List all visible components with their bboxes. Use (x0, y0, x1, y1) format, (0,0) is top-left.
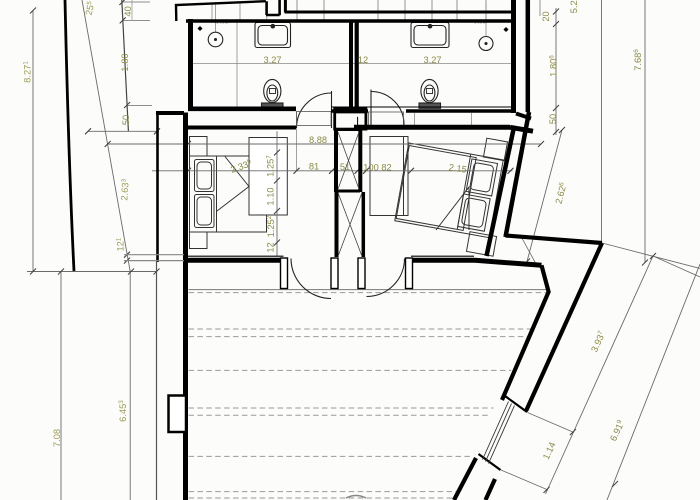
svg-text:40: 40 (123, 6, 133, 16)
svg-text:5.25: 5.25 (569, 0, 579, 13)
svg-text:3.27: 3.27 (423, 55, 441, 65)
svg-text:20: 20 (541, 11, 551, 21)
svg-text:12: 12 (266, 242, 276, 252)
svg-text:1.80: 1.80 (120, 53, 130, 71)
svg-text:12: 12 (358, 55, 368, 65)
svg-text:1.10: 1.10 (266, 187, 276, 205)
svg-text:3.27: 3.27 (263, 55, 281, 65)
svg-text:100 82: 100 82 (363, 163, 391, 173)
svg-text:50: 50 (548, 114, 558, 124)
svg-text:51: 51 (340, 162, 350, 172)
svg-text:50: 50 (121, 115, 131, 125)
svg-text:81: 81 (309, 162, 319, 172)
svg-text:8.88: 8.88 (309, 135, 327, 145)
svg-text:7.08: 7.08 (52, 429, 62, 447)
